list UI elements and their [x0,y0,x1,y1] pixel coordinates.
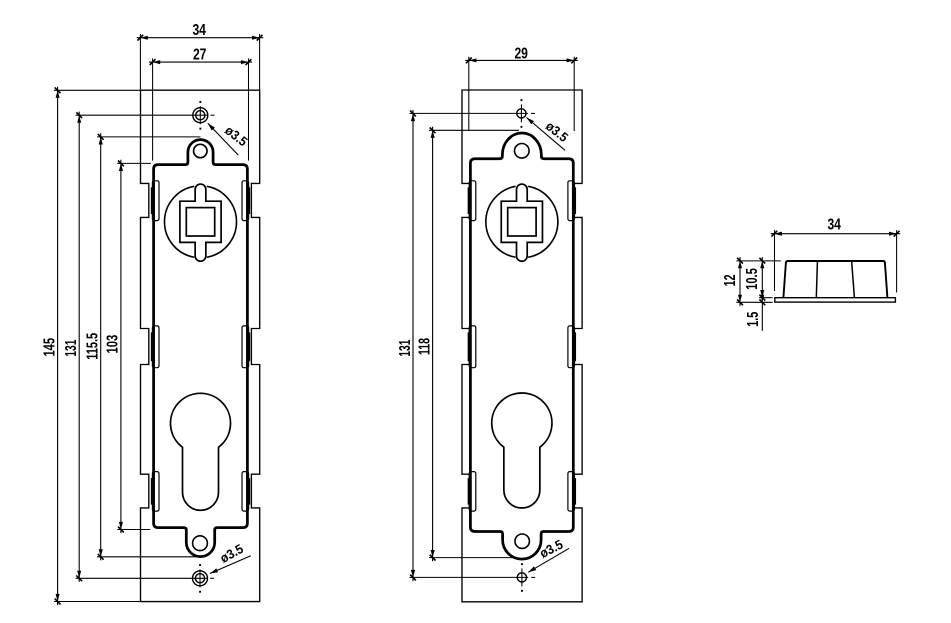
svg-text:115.5: 115.5 [84,333,101,360]
svg-text:12: 12 [722,274,739,286]
svg-text:10.5: 10.5 [744,268,761,290]
svg-text:118: 118 [416,338,433,355]
svg-text:34: 34 [827,216,841,233]
svg-text:27: 27 [193,46,207,63]
svg-text:131: 131 [63,339,80,356]
svg-text:29: 29 [514,45,528,62]
svg-text:131: 131 [397,339,414,356]
svg-text:103: 103 [105,334,122,353]
svg-text:145: 145 [41,338,58,357]
svg-text:1.5: 1.5 [745,311,762,326]
svg-text:34: 34 [192,22,206,39]
